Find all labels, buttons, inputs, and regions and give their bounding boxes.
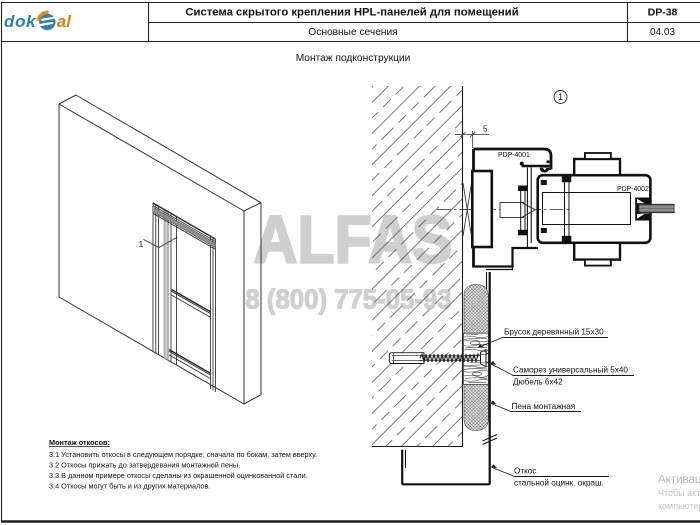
svg-text:Чтобы активировать Windows, пе: Чтобы активировать Windows, перейд: [658, 488, 700, 498]
svg-text:Монтаж откосов:: Монтаж откосов:: [49, 438, 110, 447]
svg-text:Откос: Откос: [514, 467, 536, 476]
svg-text:стальной оцинк. окраш.: стальной оцинк. окраш.: [514, 479, 604, 488]
svg-text:Активация Windows: Активация Windows: [658, 474, 700, 486]
svg-text:al: al: [57, 12, 72, 31]
svg-text:компьютера.: компьютера.: [658, 501, 700, 511]
svg-text:dok: dok: [4, 12, 37, 31]
svg-text:Монтаж подконструкции: Монтаж подконструкции: [296, 53, 411, 64]
svg-text:PDP-4001: PDP-4001: [498, 152, 530, 159]
svg-text:3.3 В данном примере откосы сд: 3.3 В данном примере откосы сделаны из о…: [49, 471, 308, 480]
svg-text:04.03: 04.03: [650, 27, 675, 38]
svg-text:Пена монтажная: Пена монтажная: [512, 402, 576, 411]
svg-text:Основные сечения: Основные сечения: [308, 27, 397, 38]
svg-text:3.2 Откосы прижать до затверде: 3.2 Откосы прижать до затвердевания монт…: [49, 460, 240, 469]
svg-text:Брусок деревянный 15х30: Брусок деревянный 15х30: [504, 328, 604, 337]
svg-text:Саморез универсальный 5х40: Саморез универсальный 5х40: [513, 366, 628, 375]
svg-text:1: 1: [139, 239, 144, 249]
svg-text:1: 1: [558, 92, 563, 102]
svg-text:PDP-4002: PDP-4002: [617, 186, 649, 193]
svg-text:Система скрытого крепления HPL: Система скрытого крепления HPL-панелей д…: [185, 7, 518, 19]
svg-text:5: 5: [483, 125, 488, 134]
svg-text:Дюбель 6х42: Дюбель 6х42: [513, 378, 563, 387]
svg-text:3.1 Установить откосы в следую: 3.1 Установить откосы в следующем порядк…: [49, 450, 317, 459]
svg-text:DP-38: DP-38: [648, 7, 678, 19]
svg-text:3.4 Откосы могут быть и из дру: 3.4 Откосы могут быть и из других матери…: [49, 482, 210, 491]
